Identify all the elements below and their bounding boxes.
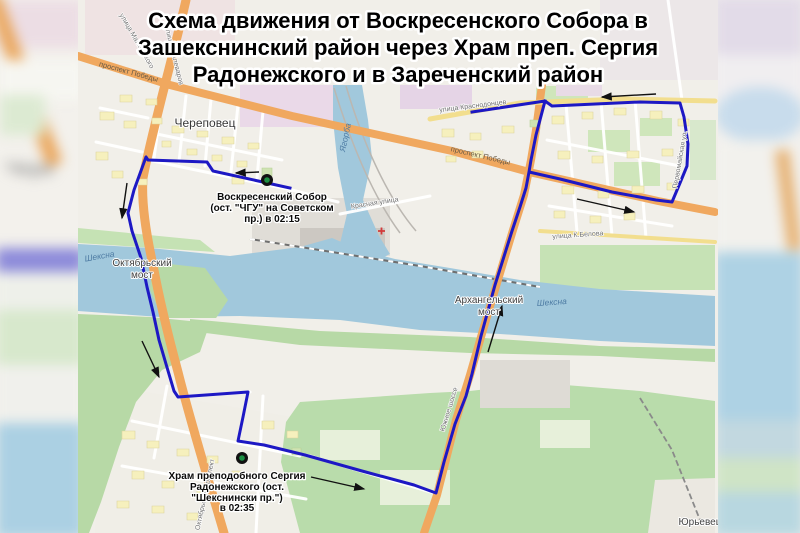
svg-text:(ост. "ЧГУ" на Советском: (ост. "ЧГУ" на Советском: [210, 203, 333, 214]
stop-marker-hram: [236, 452, 248, 464]
svg-text:Храм преподобного Сергия: Храм преподобного Сергия: [169, 470, 306, 482]
bridge-arkhangelsky-label: Архангельский: [455, 295, 523, 306]
svg-text:Воскресенский Собор: Воскресенский Собор: [217, 191, 327, 203]
map-svg: Череповец Октябрьский мост Архангельский…: [0, 0, 800, 533]
title: Схема движения от Воскресенского Собора …: [138, 8, 658, 87]
screenshot-root: Череповец Октябрьский мост Архангельский…: [0, 0, 800, 533]
blur-band-right: [714, 0, 800, 533]
bridge-oktyabrsky-label2: мост: [131, 270, 153, 281]
stop-marker-sobor: [261, 174, 273, 186]
svg-text:в 02:35: в 02:35: [220, 503, 255, 514]
direction-arrow: [236, 172, 259, 173]
city-label: Череповец: [175, 116, 236, 130]
blur-city-text: Чере: [6, 158, 55, 180]
svg-text:пр.) в 02:15: пр.) в 02:15: [244, 214, 300, 225]
title-line-2: Зашекснинский район через Храм преп. Сер…: [138, 35, 658, 60]
place-label-yurevets: Юрьевец: [679, 517, 722, 528]
title-line-1: Схема движения от Воскресенского Собора …: [148, 8, 648, 33]
bridge-oktyabrsky-label: Октябрьский: [112, 257, 171, 269]
blur-band-left: Чере: [0, 0, 85, 533]
bridge-arkhangelsky-label2: мост: [478, 307, 500, 318]
title-line-3: Радонежского и в Зареченский район: [193, 62, 603, 87]
river-label-sheksna-east: Шексна: [536, 296, 567, 308]
svg-text:Радонежского (ост.: Радонежского (ост.: [190, 482, 284, 493]
